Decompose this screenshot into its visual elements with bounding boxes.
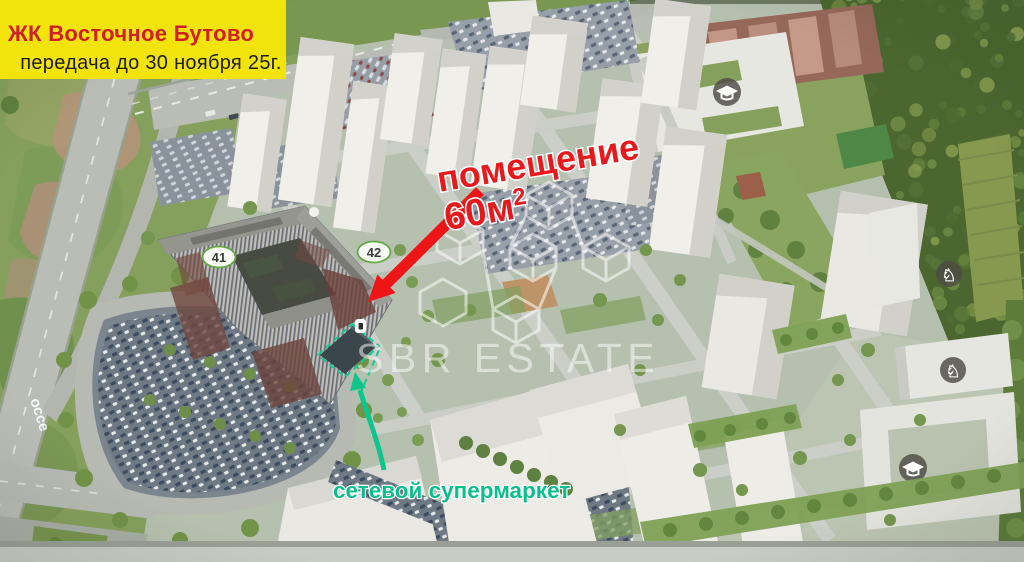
svg-text:сетевой супермаркет: сетевой супермаркет bbox=[333, 478, 570, 503]
svg-text:ЖК Восточное Бутово: ЖК Восточное Бутово bbox=[7, 21, 254, 46]
svg-text:SBR ESTATE: SBR ESTATE bbox=[356, 335, 660, 381]
svg-text:передача до 30 ноября 25г.: передача до 30 ноября 25г. bbox=[20, 52, 282, 74]
